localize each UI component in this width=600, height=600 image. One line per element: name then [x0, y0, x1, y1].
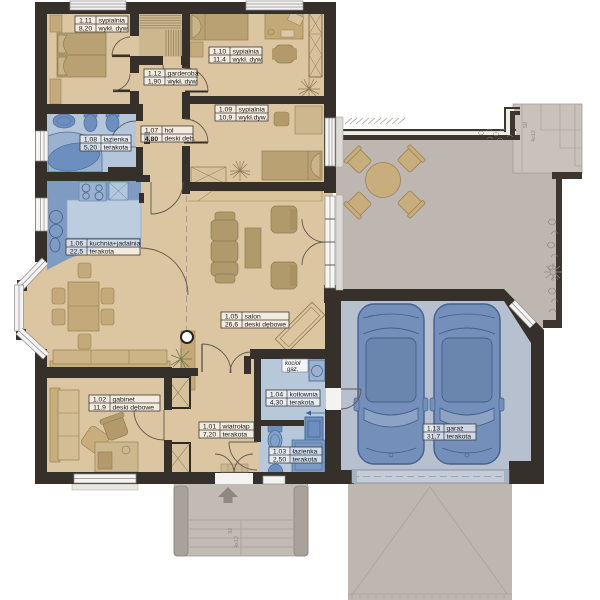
svg-text:sypialnia: sypialnia [239, 107, 266, 114]
svg-text:wykł. dyw.: wykł. dyw. [98, 26, 130, 33]
svg-text:terakota: terakota [447, 434, 472, 441]
svg-text:1.06: 1.06 [70, 241, 83, 248]
svg-text:wykł.dyw.: wykł.dyw. [238, 115, 268, 122]
svg-text:50: 50 [523, 122, 529, 128]
svg-text:wykł. dyw.: wykł. dyw. [167, 79, 199, 86]
svg-text:gaz.: gaz. [287, 367, 298, 373]
svg-text:hol: hol [165, 128, 175, 135]
svg-text:22,5: 22,5 [70, 249, 83, 256]
svg-text:1.05: 1.05 [225, 314, 238, 321]
svg-text:1.07: 1.07 [145, 128, 158, 135]
svg-text:1.13: 1.13 [427, 426, 440, 433]
svg-text:4,80: 4,80 [145, 136, 158, 143]
svg-text:1,90: 1,90 [148, 79, 161, 86]
svg-text:deski dębowe: deski dębowe [245, 322, 287, 329]
svg-text:garderoba: garderoba [168, 71, 199, 78]
svg-text:4x12: 4x12 [531, 130, 537, 142]
svg-text:1.12: 1.12 [148, 71, 161, 78]
svg-text:1.11: 1.11 [79, 18, 92, 25]
svg-text:wykł. dyw.: wykł. dyw. [232, 57, 264, 64]
svg-text:5,20: 5,20 [84, 145, 97, 152]
svg-text:1.09: 1.09 [219, 107, 232, 114]
svg-text:4x12: 4x12 [234, 536, 240, 548]
svg-text:wiatrołap: wiatrołap [222, 424, 250, 431]
svg-text:1.08: 1.08 [84, 137, 97, 144]
svg-text:terakota: terakota [90, 249, 115, 256]
svg-text:deski dęb.: deski dęb. [165, 136, 196, 143]
svg-text:terakota: terakota [223, 432, 248, 439]
svg-text:salon: salon [245, 314, 261, 321]
svg-text:deski dębowe: deski dębowe [113, 405, 155, 412]
svg-text:26,6: 26,6 [225, 322, 238, 329]
svg-text:sypialnia: sypialnia [233, 49, 260, 56]
svg-text:1.02: 1.02 [93, 397, 106, 404]
svg-text:1.10: 1.10 [213, 49, 226, 56]
svg-text:kotłownia: kotłownia [290, 392, 319, 399]
svg-text:7,20: 7,20 [203, 432, 216, 439]
svg-text:2,50: 2,50 [273, 457, 286, 464]
svg-text:11,4: 11,4 [213, 57, 226, 64]
svg-text:terakota: terakota [290, 400, 315, 407]
svg-text:8,20: 8,20 [79, 26, 92, 33]
svg-text:31,7: 31,7 [427, 434, 440, 441]
svg-text:11,9: 11,9 [93, 405, 106, 412]
svg-text:terakota: terakota [293, 457, 318, 464]
svg-text:10,9: 10,9 [219, 115, 232, 122]
svg-text:terakota: terakota [104, 145, 129, 152]
svg-text:gabinet: gabinet [113, 397, 135, 404]
svg-text:1.01: 1.01 [203, 424, 216, 431]
svg-text:1.04: 1.04 [270, 392, 283, 399]
svg-text:kuchnia+jadalnia: kuchnia+jadalnia [90, 241, 141, 248]
svg-text:32: 32 [228, 528, 234, 534]
svg-text:4,30: 4,30 [270, 400, 283, 407]
svg-text:łazienka: łazienka [293, 449, 318, 456]
svg-text:1.03: 1.03 [273, 449, 286, 456]
svg-text:łazienka: łazienka [104, 137, 129, 144]
svg-text:sypialnia: sypialnia [99, 18, 126, 25]
svg-text:garaż: garaż [447, 426, 465, 433]
